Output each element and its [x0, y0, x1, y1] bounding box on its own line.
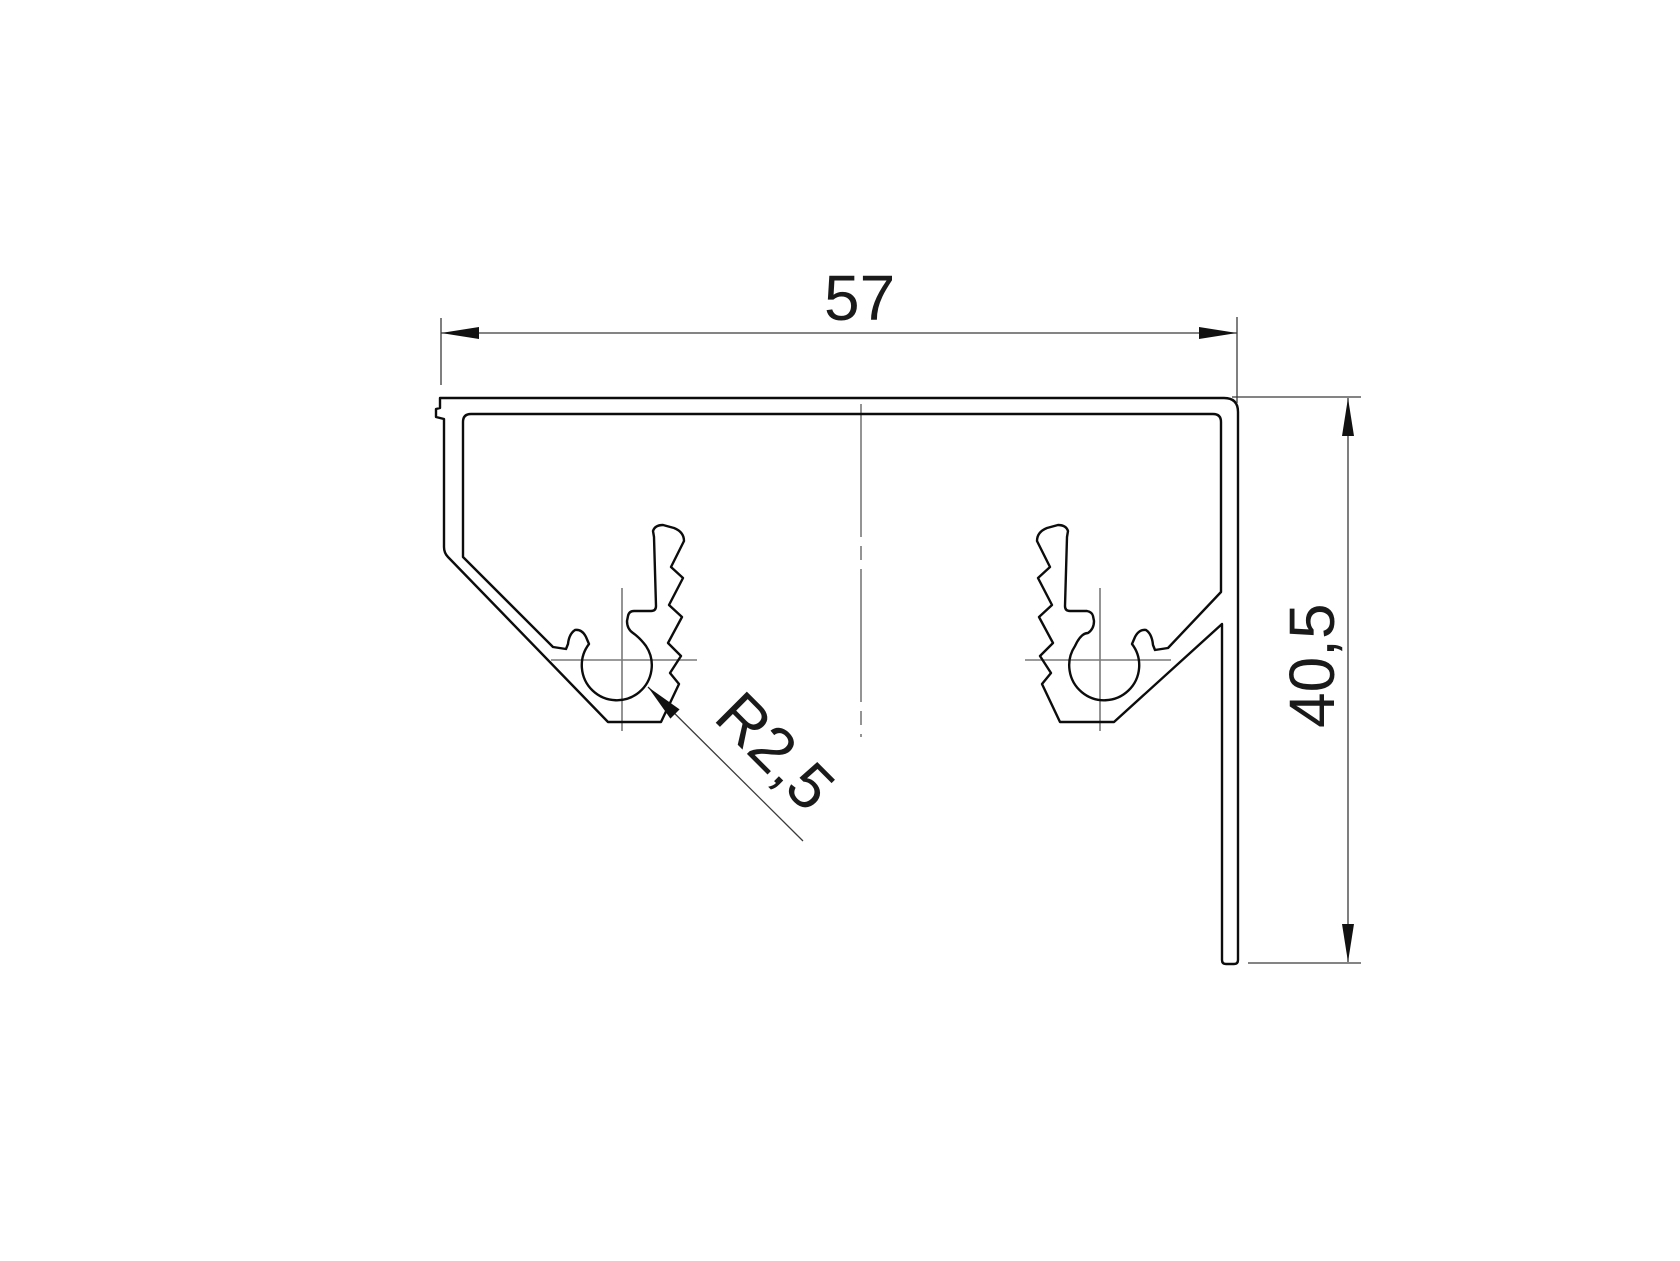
dimension-height-label: 40,5 [1276, 603, 1348, 728]
dimension-height: 40,5 [1232, 397, 1361, 963]
dimension-radius: R2,5 [648, 678, 849, 841]
width-arrowhead-right [1199, 327, 1237, 339]
technical-drawing-svg: 57 40,5 R2,5 [0, 0, 1680, 1261]
drawing-canvas: 57 40,5 R2,5 [0, 0, 1680, 1261]
height-arrowhead-bottom [1342, 924, 1354, 962]
profile-outline [436, 398, 1238, 964]
dimension-radius-label: R2,5 [702, 678, 849, 825]
dimension-width: 57 [441, 262, 1237, 403]
dimension-width-label: 57 [824, 262, 895, 334]
height-arrowhead-top [1342, 398, 1354, 436]
width-arrowhead-left [441, 327, 479, 339]
